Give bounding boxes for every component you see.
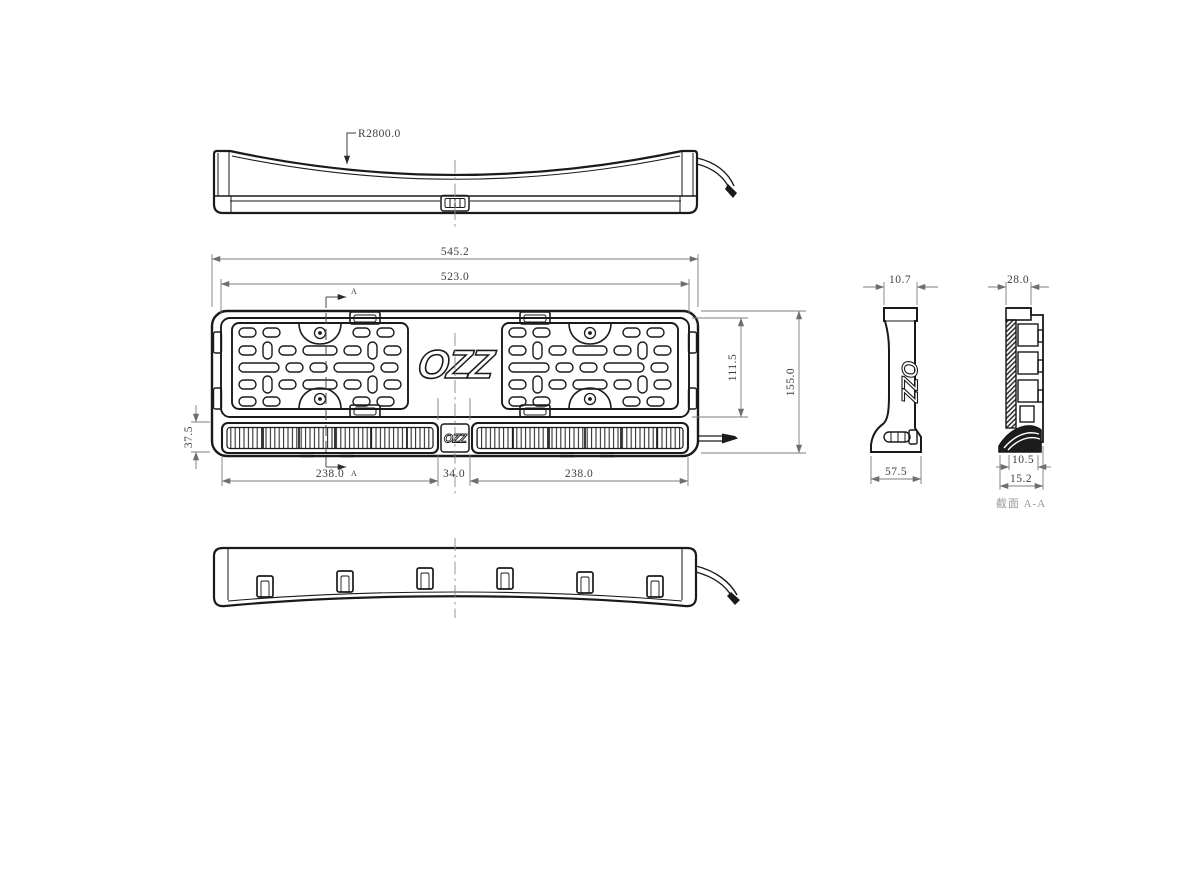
drawing-canvas: R2800.0 OZZ OZZ [0,0,1200,876]
dim-overall-width: 545.2 [441,246,469,258]
top-view: R2800.0 [214,128,737,228]
dim-section-inner-width: 10.5 [1012,454,1034,466]
dim-plate-window-width: 523.0 [441,271,469,283]
side-view-profile: OZZ [871,308,922,452]
engineering-drawing: R2800.0 OZZ OZZ [0,0,1200,876]
dim-side-bottom-depth: 57.5 [885,466,907,478]
brand-logo-front: OZZ [416,343,498,387]
bottom-view [214,538,740,618]
dim-section-top-width: 28.0 [1007,274,1029,286]
dim-side-top-thickness: 10.7 [889,274,911,286]
dim-section-bottom-width: 15.2 [1010,473,1032,485]
bottom-view-wire [696,566,740,605]
dim-center-gap: 34.0 [443,468,465,480]
dim-led-right-width: 238.0 [565,468,593,480]
section-clip-blocks [1018,324,1043,422]
front-wire [698,434,738,444]
section-marker-top: A [351,287,357,296]
section-marker-bottom: A [351,469,357,478]
side-view-connector [884,430,917,444]
section-foot [999,426,1041,452]
mounting-panel-right [502,323,678,409]
brand-logo-side: OZZ [897,361,922,405]
front-dimensions [191,254,806,486]
mounting-panel-left [232,323,408,409]
top-view-wire [697,158,737,198]
dim-led-strip-height: 37.5 [183,426,195,448]
bottom-view-clips [257,568,663,597]
brand-logo-strip: OZZ [444,432,468,446]
dim-plate-window-height: 111.5 [727,354,739,382]
section-cut-line: A A [326,287,357,478]
radius-label: R2800.0 [358,128,401,140]
front-view: OZZ OZZ [212,311,738,494]
section-view-label: 截面 A-A [996,496,1046,510]
radius-leader [347,133,356,164]
dim-led-left-width: 238.0 [316,468,344,480]
section-view [999,308,1043,452]
dim-overall-height: 155.0 [785,368,797,396]
section-wall-hatch [1006,320,1016,428]
